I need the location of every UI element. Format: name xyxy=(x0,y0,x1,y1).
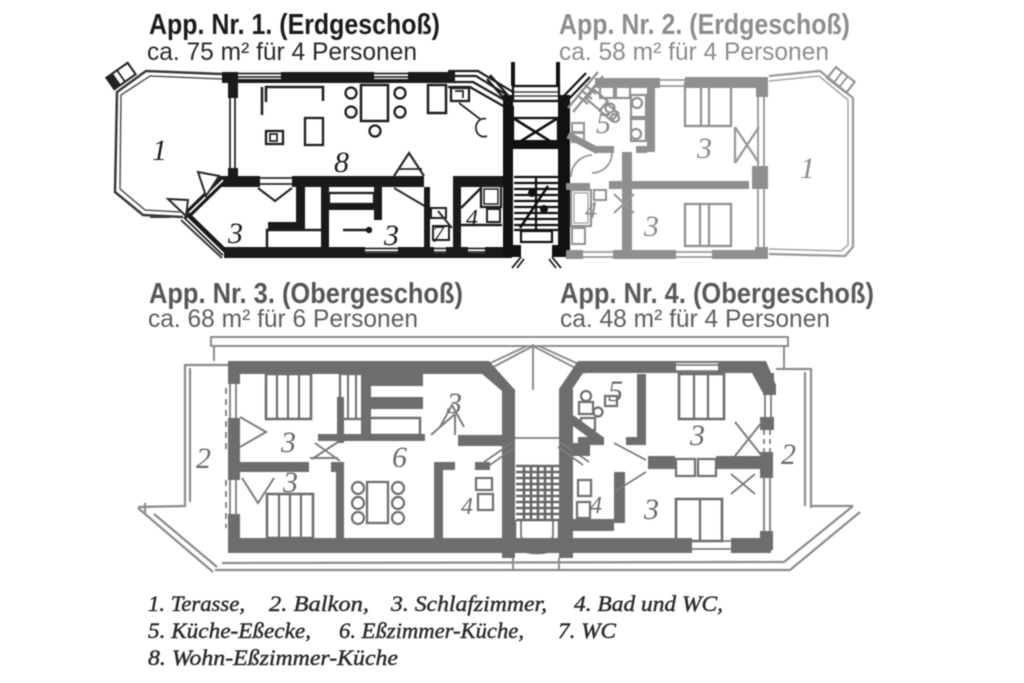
svg-text:1: 1 xyxy=(800,152,815,185)
svg-text:3: 3 xyxy=(383,219,399,252)
svg-text:3: 3 xyxy=(227,217,243,250)
svg-text:4: 4 xyxy=(461,494,473,520)
svg-text:ca. 68 m² für 6 Personen: ca. 68 m² für 6 Personen xyxy=(148,306,418,334)
svg-text:5: 5 xyxy=(608,375,623,408)
svg-text:7: 7 xyxy=(432,222,445,248)
svg-text:8: 8 xyxy=(334,146,349,179)
svg-text:4: 4 xyxy=(590,493,602,519)
svg-text:1: 1 xyxy=(152,134,167,167)
svg-text:5. Küche-Eßecke,: 5. Küche-Eßecke, xyxy=(148,618,311,643)
svg-text:2: 2 xyxy=(196,442,211,475)
svg-text:6. Eßzimmer-Küche,: 6. Eßzimmer-Küche, xyxy=(339,618,524,643)
svg-text:8. Wohn-Eßzimmer-Küche: 8. Wohn-Eßzimmer-Küche xyxy=(148,645,398,670)
svg-text:ca. 75 m² für 4 Personen: ca. 75 m² für 4 Personen xyxy=(147,39,417,67)
svg-text:5: 5 xyxy=(596,107,611,140)
svg-text:App. Nr. 2. (Erdgeschoß): App. Nr. 2. (Erdgeschoß) xyxy=(559,9,850,40)
svg-text:2. Balkon,: 2. Balkon, xyxy=(269,591,369,616)
svg-text:4: 4 xyxy=(466,206,478,232)
svg-text:4. Bad und WC,: 4. Bad und WC, xyxy=(574,591,723,616)
svg-text:2: 2 xyxy=(781,438,796,471)
svg-text:3: 3 xyxy=(643,493,659,526)
svg-text:ca. 48 m² für 4 Personen: ca. 48 m² für 4 Personen xyxy=(560,306,830,334)
svg-text:3: 3 xyxy=(282,466,298,499)
svg-text:3. Schlafzimmer,: 3. Schlafzimmer, xyxy=(390,591,547,616)
svg-text:3: 3 xyxy=(696,132,712,165)
svg-text:3: 3 xyxy=(643,210,659,243)
svg-text:3: 3 xyxy=(280,426,296,459)
svg-text:7. WC: 7. WC xyxy=(558,618,616,643)
svg-text:ca. 58 m² für 4 Personen: ca. 58 m² für 4 Personen xyxy=(559,39,829,67)
svg-text:4: 4 xyxy=(585,198,597,224)
svg-text:1. Terasse,: 1. Terasse, xyxy=(148,591,245,616)
svg-text:App. Nr. 1. (Erdgeschoß): App. Nr. 1. (Erdgeschoß) xyxy=(149,9,440,40)
svg-text:3: 3 xyxy=(689,419,705,452)
svg-text:6: 6 xyxy=(392,441,407,474)
